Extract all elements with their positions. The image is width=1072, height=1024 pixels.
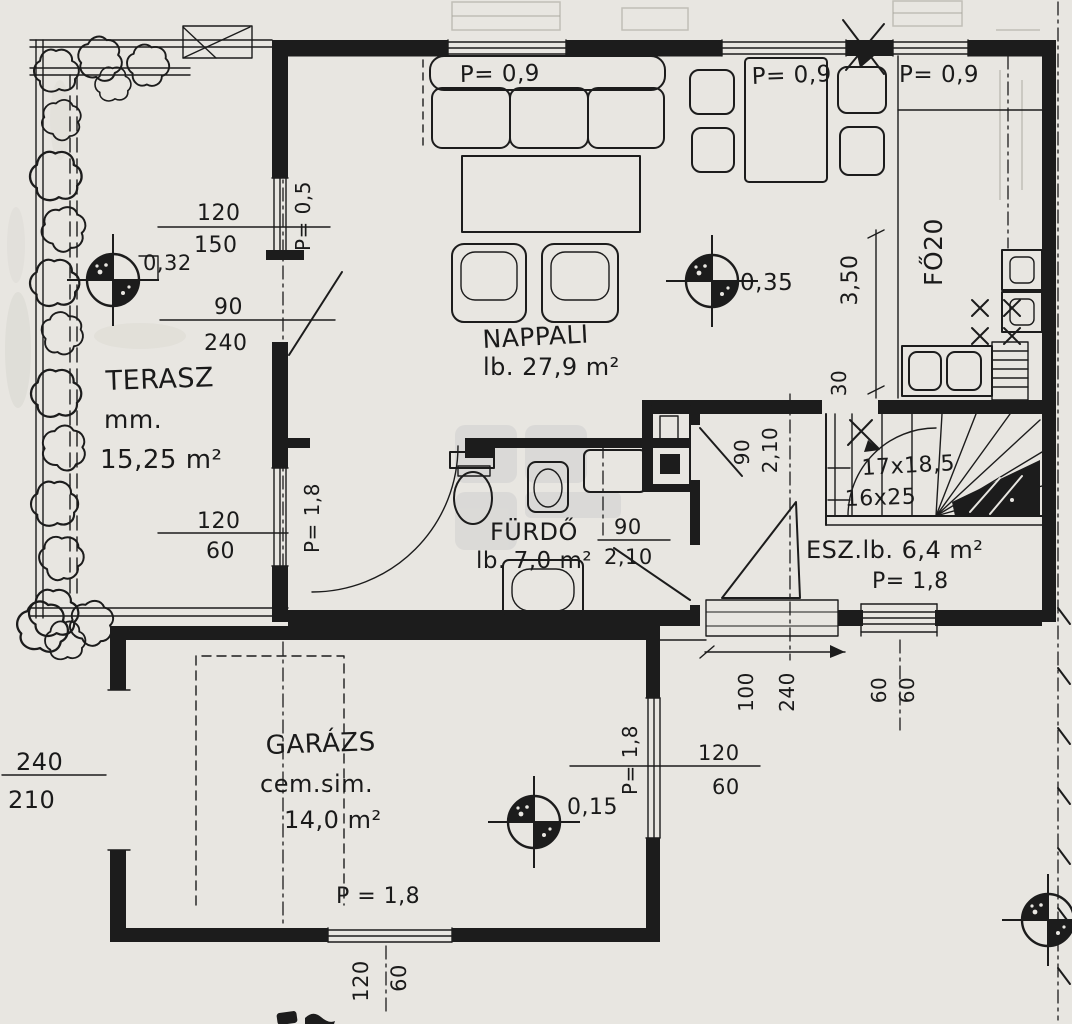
level-value: 0,15 [567,795,618,820]
room-area: 14,0 m² [284,806,382,834]
dim-text: 30 [827,370,851,396]
floor-plan-drawing: P= 0,9 P= 0,9 P= 0,9 P= 0,5 P= 1,8 P= 1,… [0,0,1072,1024]
floor-plan-scan: P= 0,9 P= 0,9 P= 0,9 P= 0,5 P= 1,8 P= 1,… [0,0,1072,1024]
parapet-label: P= 0,9 [460,61,540,88]
parapet-label: P= 1,8 [618,725,642,795]
room-name: ESZ.lb. 6,4 m² [806,536,983,564]
dim-text: 120 [197,201,241,226]
kitchen-note: FŐ20 [918,218,948,286]
room-name: NAPPALI [482,319,590,354]
dim-text: 60 [387,964,411,992]
dim-text: 90 [614,515,642,539]
dining-window [722,40,846,56]
parapet-label: P= 0,9 [751,61,832,90]
dim-text: 2,10 [604,545,653,569]
room-name: FÜRDŐ [490,516,578,546]
dim-text: 90 [214,295,243,320]
bath-window [272,468,288,566]
terrace-window [272,178,288,250]
dim-text: 3,50 [838,255,863,306]
room-name: GARÁZS [265,725,376,761]
room-area: lb. 27,9 m² [483,353,620,381]
room-parapet: P= 1,8 [872,569,949,594]
room-material: cem.sim. [260,770,373,798]
dim-text: 120 [349,960,373,1002]
dim-text: 100 [734,672,758,712]
stair-dim: 16x25 [844,485,916,512]
dim-text: 120 [698,741,740,765]
dim-text: 210 [8,786,55,814]
dim-text: 60 [895,677,919,703]
parapet-label: P= 0,9 [899,62,979,88]
parapet-label: P = 1,8 [336,884,420,909]
dim-text: 150 [194,233,238,258]
room-area: 15,25 m² [100,445,222,475]
kitchen-window [893,40,968,56]
dim-text: 60 [206,539,235,564]
dim-text: 240 [16,748,63,776]
room-label-furdo: FÜRDŐ lb. 7,0 m² [476,516,592,574]
level-value: 0,32 [143,251,192,275]
dim-text: 240 [204,331,248,356]
stair-dim: 17x18,5 [861,451,956,481]
dim-text: 60 [867,677,891,703]
dim-text: 60 [712,775,740,799]
dim-text: 120 [197,509,241,534]
room-material: mm. [104,405,162,434]
parapet-label: P= 1,8 [300,483,324,553]
room-name: TERASZ [104,362,214,397]
level-value: 0,35 [740,270,793,296]
parapet-label: P= 0,5 [291,181,315,251]
sofa-window [448,40,566,56]
dim-text: 2,10 [758,427,782,474]
dim-text: 90 [730,439,754,465]
dim-text: 240 [775,672,799,712]
room-area: lb. 7,0 m² [476,548,592,574]
